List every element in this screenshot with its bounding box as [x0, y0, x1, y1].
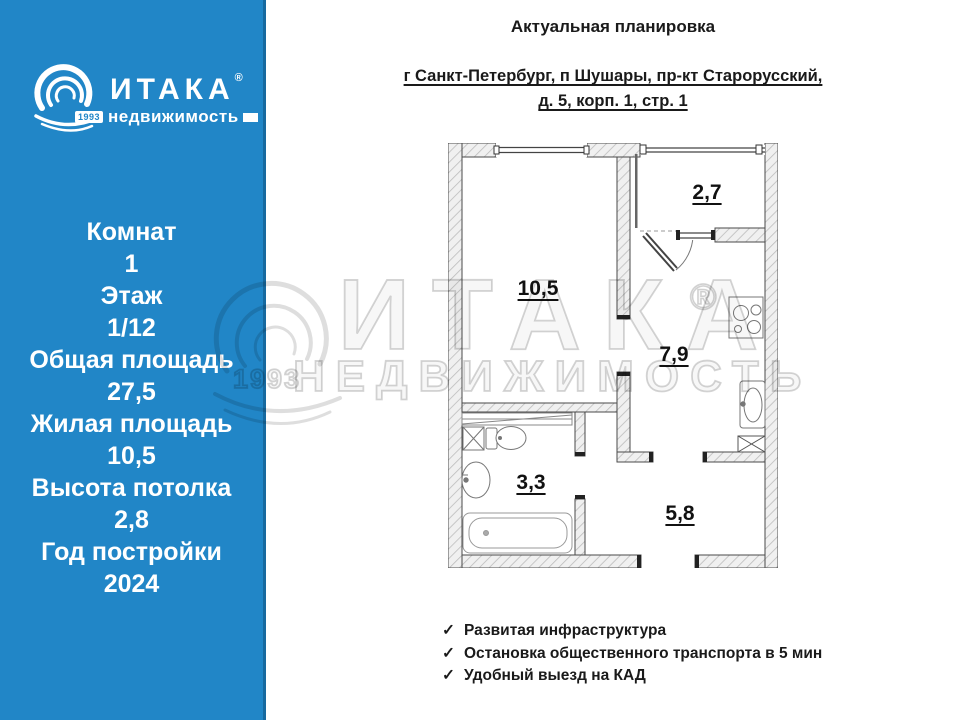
balcony-window: [676, 230, 715, 240]
stat-value-year-built: 2024: [0, 568, 263, 600]
stat-value-floor: 1/12: [0, 312, 263, 344]
wardrobe: [462, 413, 572, 425]
stat-label-ceiling: Высота потолка: [0, 472, 263, 504]
header: Актуальная планировка г Санкт-Петербург,…: [296, 0, 930, 114]
address-line-1: г Санкт-Петербург, п Шушары, пр-кт Старо…: [296, 64, 930, 89]
feature-item: ✓ Развитая инфраструктура: [442, 620, 822, 643]
brand-logo: ИТАКА® недвижимость 1993: [28, 56, 254, 144]
logo-dash-icon: [243, 113, 258, 122]
property-address: г Санкт-Петербург, п Шушары, пр-кт Старо…: [296, 64, 930, 114]
address-line-2: д. 5, корп. 1, стр. 1: [296, 89, 930, 114]
washing-machine: [463, 427, 484, 450]
registered-mark-icon: ®: [235, 72, 243, 84]
stat-label-floor: Этаж: [0, 280, 263, 312]
page-title: Актуальная планировка: [296, 17, 930, 37]
feature-text: Развитая инфраструктура: [464, 620, 666, 643]
bathtub: [463, 513, 572, 553]
feature-item: ✓ Удобный выезд на КАД: [442, 665, 822, 688]
bathroom-door-jamb: [575, 495, 585, 499]
balcony-side-wall: [635, 154, 638, 228]
check-icon: ✓: [442, 643, 455, 666]
floor-background: [448, 143, 778, 568]
stat-value-living-area: 10,5: [0, 440, 263, 472]
entrance-door-jamb: [637, 555, 641, 568]
area-label-hallway: 5,8: [665, 502, 694, 526]
feature-list: ✓ Развитая инфраструктура ✓ Остановка об…: [442, 620, 822, 688]
stat-value-total-area: 27,5: [0, 376, 263, 408]
stove: [729, 297, 763, 338]
feature-text: Остановка общественного транспорта в 5 м…: [464, 643, 822, 666]
stat-value-rooms: 1: [0, 248, 263, 280]
area-label-balcony: 2,7: [692, 181, 721, 205]
bathroom-sink: [462, 462, 490, 498]
feature-text: Удобный выезд на КАД: [464, 665, 646, 688]
brand-name: ИТАКА®: [110, 72, 243, 107]
check-icon: ✓: [442, 665, 455, 688]
flyer-page: { "icons": { "check": "✓", "reg": "®" },…: [0, 0, 960, 720]
entrance-door-jamb: [695, 555, 699, 568]
stat-label-rooms: Комнат: [0, 216, 263, 248]
floorplan-drawing: [448, 143, 778, 568]
living-door-jamb: [617, 372, 630, 376]
stat-value-ceiling: 2,8: [0, 504, 263, 536]
stat-label-living-area: Жилая площадь: [0, 408, 263, 440]
kitchen-door-jamb: [703, 452, 707, 462]
check-icon: ✓: [442, 620, 455, 643]
area-label-living-room: 10,5: [518, 277, 559, 301]
living-room-window: [494, 143, 589, 157]
feature-item: ✓ Остановка общественного транспорта в 5…: [442, 643, 822, 666]
brand-year-badge: 1993: [75, 111, 103, 123]
stat-label-total-area: Общая площадь: [0, 344, 263, 376]
kitchen-door-jamb: [649, 452, 653, 462]
area-label-bathroom: 3,3: [516, 471, 545, 495]
wave-swirl-icon: [30, 58, 104, 136]
stat-label-year-built: Год постройки: [0, 536, 263, 568]
area-label-kitchen: 7,9: [659, 343, 688, 367]
property-stats: Комнат 1 Этаж 1/12 Общая площадь 27,5 Жи…: [0, 216, 263, 600]
kitchen-sink: [740, 381, 765, 428]
vent-shaft: [738, 436, 765, 452]
sidebar: ИТАКА® недвижимость 1993 Комнат 1 Этаж 1…: [0, 0, 266, 720]
brand-subtitle: недвижимость: [108, 107, 258, 127]
living-door-jamb: [617, 315, 630, 319]
bathroom-door-jamb: [575, 452, 585, 456]
toilet: [486, 427, 526, 450]
